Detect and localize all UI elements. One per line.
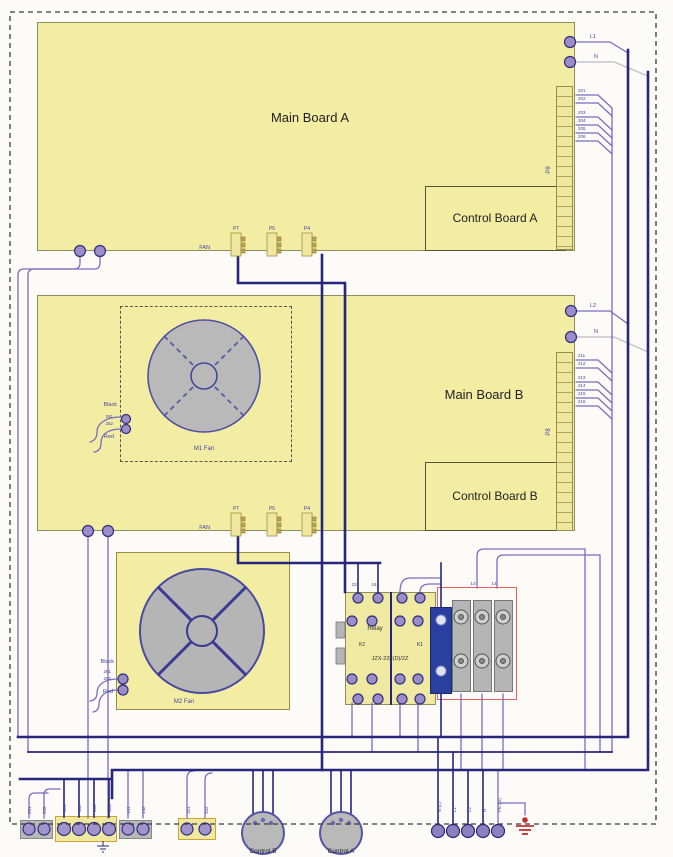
bottom-right-terminals <box>432 825 505 838</box>
wire-b-l2-label: L2 <box>590 303 596 309</box>
bl-label-4: 102 <box>77 804 82 812</box>
relay-pin-23: 23 <box>351 582 357 587</box>
knob-a-label: Control A <box>328 848 355 855</box>
bl-label-5: 103 <box>92 804 97 812</box>
relay-pin-24: 24 <box>371 582 377 587</box>
bottom-terminal-pair-1 <box>20 820 53 839</box>
bl-label-1: 231 <box>27 806 32 814</box>
wires-light <box>576 62 648 352</box>
blue-terminal-block <box>430 607 452 694</box>
knob-b-label: Control B <box>249 848 276 855</box>
bl-label-8: 142 <box>141 806 146 814</box>
bl-label-10: 152 <box>204 806 209 814</box>
a-pin-6: 206 <box>578 134 586 139</box>
b-pin-6: 216 <box>578 399 586 404</box>
power-label-5: PE (G) <box>497 798 502 812</box>
bottom-terminal-pair-2 <box>119 820 152 839</box>
a-pin-4: 204 <box>578 118 586 123</box>
power-label-3: L2 <box>467 806 472 812</box>
m2-black-label: Black <box>101 659 115 665</box>
a-pin-3: 203 <box>578 110 586 115</box>
b-pin-4: 214 <box>578 383 586 388</box>
small-ground-icon <box>97 841 109 852</box>
bl-label-6: 104 <box>107 804 112 812</box>
a-pin-5: 205 <box>578 126 586 131</box>
relay-pin-13: 13 <box>470 581 476 586</box>
relay-block <box>345 592 436 705</box>
a-pin-1: 201 <box>578 88 586 93</box>
b-pin-3: 213 <box>578 375 586 380</box>
m2-fan-plate <box>116 552 290 710</box>
m2-pin2-label: 262 <box>103 676 111 681</box>
wire-b-n-label: N <box>594 329 598 335</box>
control-knob-b <box>242 812 284 854</box>
board-a-edge-connector-p8 <box>556 86 573 250</box>
power-label-1: N (L) <box>437 801 442 812</box>
relay-pin-14: 14 <box>491 581 497 586</box>
wiring-diagram: Main Board A Control Board A Main Board … <box>0 0 673 857</box>
m2-red-label: Red <box>103 689 113 695</box>
terminal-strip-2 <box>473 600 492 692</box>
bl-label-2: 232 <box>42 806 47 814</box>
control-knob-a <box>320 812 362 854</box>
bl-label-3: 101 <box>62 804 67 812</box>
bl-label-9: 151 <box>186 806 191 814</box>
wire-a-n-label: N <box>594 54 598 60</box>
b-pin-2: 212 <box>578 361 586 366</box>
control-board-b <box>425 462 566 531</box>
b-pin-1: 211 <box>578 353 586 358</box>
bl-label-7: 141 <box>126 806 131 814</box>
bottom-terminal-pair-3 <box>178 818 216 840</box>
relay-tabs <box>336 622 345 664</box>
board-b-edge-connector-p8 <box>556 352 573 531</box>
terminal-strip-1 <box>452 600 471 692</box>
power-label-4: N <box>482 809 487 812</box>
wire-a-l1-label: L1 <box>590 34 596 40</box>
power-label-2: L1 <box>452 806 457 812</box>
earth-ground-icon <box>516 817 534 834</box>
m1-fan-dashed-outline <box>120 306 292 462</box>
bottom-terminal-strip-yellow <box>55 816 117 842</box>
b-pin-5: 215 <box>578 391 586 396</box>
control-board-a <box>425 186 566 251</box>
a-pin-2: 202 <box>578 96 586 101</box>
m2-pin1-label: 261 <box>103 669 111 674</box>
terminal-strip-3 <box>494 600 513 692</box>
